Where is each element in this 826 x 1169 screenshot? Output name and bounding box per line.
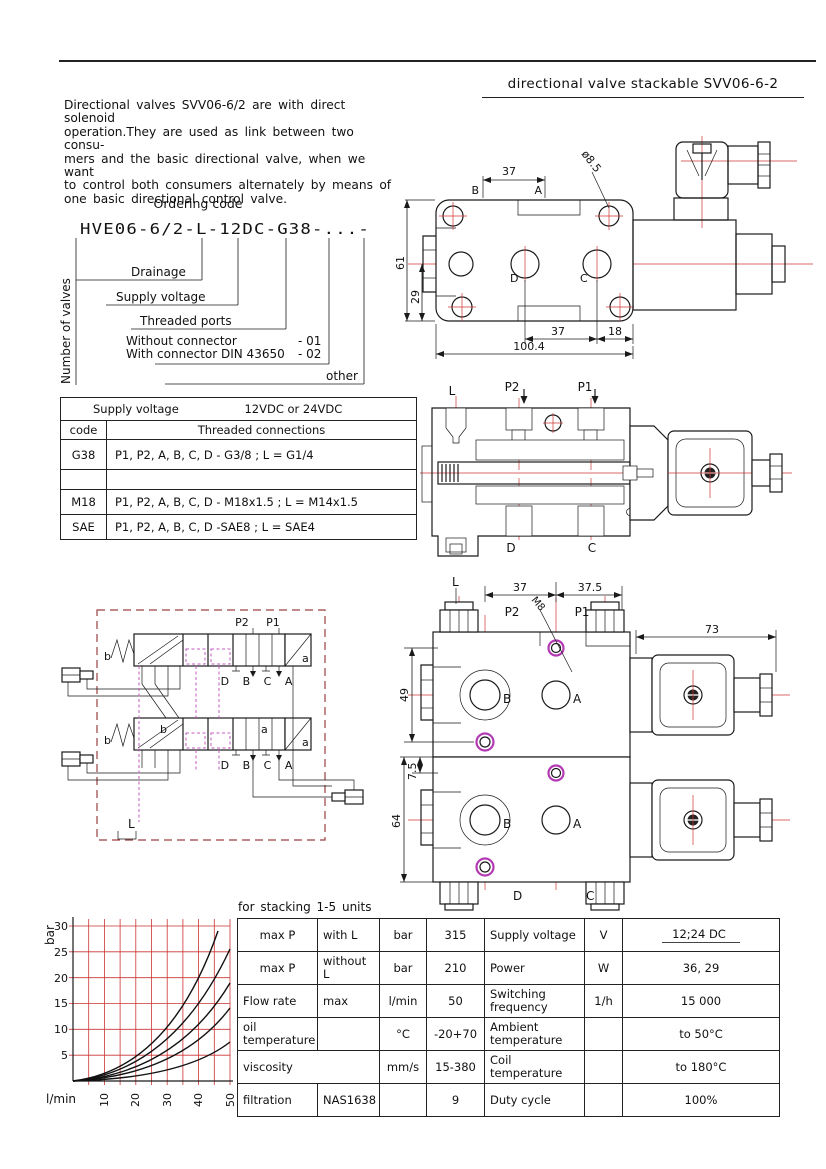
port-d-label: D — [506, 541, 515, 555]
spec-cell: 50 — [427, 985, 485, 1018]
supply-voltage-value: 12VDC or 24VDC — [244, 402, 342, 416]
port-p1-label: P1 — [575, 605, 590, 619]
chart-xlabel: l/min — [46, 1092, 76, 1106]
with-connector-code: - 02 — [298, 347, 321, 361]
xtick: 20 — [129, 1093, 142, 1107]
spec-cell: -20+70 — [427, 1018, 485, 1051]
spec-cell: 15-380 — [427, 1051, 485, 1084]
xtick: 30 — [161, 1093, 174, 1107]
code-cell: G38 — [61, 440, 107, 470]
spring-b-label-2: b — [104, 734, 111, 747]
spec-cell: max P — [238, 952, 318, 985]
spec-cell: Flow rate — [238, 985, 318, 1018]
spec-cell — [585, 1051, 623, 1084]
dim-37-top: 37 — [502, 165, 516, 178]
connections-cell: P1, P2, A, B, C, D - G3/8 ; L = G1/4 — [107, 440, 417, 470]
spec-cell — [585, 1018, 623, 1051]
dim-64: 64 — [390, 814, 403, 828]
spec-cell: Duty cycle — [485, 1084, 585, 1117]
spec-cell: 12;24 DC — [623, 919, 780, 952]
spec-cell: l/min — [380, 985, 427, 1018]
spec-cell: 210 — [427, 952, 485, 985]
spec-cell: without L — [318, 952, 380, 985]
xtick: 10 — [98, 1093, 111, 1107]
code-cell: M18 — [61, 490, 107, 515]
supply-voltage-label: Supply voltage — [93, 402, 179, 416]
port-p1-label: P1 — [578, 380, 593, 394]
intro-line: Directional valves SVV06-6/2 are with di… — [64, 99, 398, 126]
port-p2-label: P2 — [505, 605, 520, 619]
spec-cell: 36, 29 — [623, 952, 780, 985]
spec-cell: NAS1638 — [318, 1084, 380, 1117]
ytick: 15 — [54, 997, 68, 1010]
port-c-label: C — [588, 541, 596, 555]
port-b2-label: B — [503, 817, 511, 831]
valve-top-view-drawing: 37 B A ø8.5 61 29 D C 37 18 100.4 — [393, 128, 823, 378]
port-d-label: D — [513, 889, 522, 903]
stacking-note: for stacking 1-5 units — [238, 900, 371, 914]
port-p2-label: P2 — [505, 380, 520, 394]
code-header: code — [61, 421, 107, 440]
solenoid-2 — [630, 780, 772, 860]
schematic-p1: P1 — [266, 616, 280, 629]
consumer-plug-1 — [62, 668, 93, 682]
consumer-plug-2 — [62, 752, 93, 766]
ytick: 5 — [61, 1049, 68, 1062]
port-c-label: C — [586, 889, 594, 903]
solenoid-a-label-1: a — [302, 652, 309, 665]
ytick: 25 — [54, 946, 68, 959]
specs-table: max P with L bar 315 Supply voltage V 12… — [237, 918, 780, 1117]
position-b-label-2: b — [160, 723, 167, 736]
thread-m8-label: M8 — [529, 595, 547, 614]
position-a-label-2: a — [261, 723, 268, 736]
threaded-ports-label: Threaded ports — [139, 314, 232, 328]
datasheet-page: directional valve stackable SVV06-6-2 Di… — [0, 0, 826, 1169]
dim-18: 18 — [608, 325, 622, 338]
spec-cell: W — [585, 952, 623, 985]
with-connector-label: With connector DIN 43650 — [126, 347, 285, 361]
consumer-plug-3 — [332, 790, 363, 804]
voltage-header-cell: Supply voltage 12VDC or 24VDC — [61, 398, 417, 421]
code-cell: SAE — [61, 515, 107, 540]
port-b-label: B — [471, 184, 479, 197]
spec-cell: 315 — [427, 919, 485, 952]
intro-line: operation.They are used as link between … — [64, 126, 398, 153]
ports-dbca-2: D B C A — [221, 759, 298, 772]
ordering-code: HVE06-6/2-L-12DC-G38-...- — [80, 220, 370, 238]
ytick: 10 — [54, 1023, 68, 1036]
ytick: 20 — [54, 972, 68, 985]
schematic-p2: P2 — [235, 616, 249, 629]
spec-cell: Power — [485, 952, 585, 985]
ordering-code-diagram: Ordering code HVE06-6/2-L-12DC-G38-...- … — [58, 192, 398, 392]
port-l-label: L — [452, 575, 459, 589]
dim-37-bottom: 37 — [551, 325, 565, 338]
spec-cell — [380, 1084, 427, 1117]
intro-line: mers and the basic directional valve, wh… — [64, 153, 398, 180]
dim-29: 29 — [409, 290, 422, 304]
stacked-valves-drawing: L 37 37.5 P2 P1 M8 73 49 7.5 64 B A B A … — [390, 570, 822, 912]
spec-cell: 100% — [623, 1084, 780, 1117]
port-b1-label: B — [503, 692, 511, 706]
port-a1-label: A — [573, 692, 582, 706]
ordering-title: Ordering code — [154, 196, 243, 211]
spec-cell: bar — [380, 919, 427, 952]
connections-cell: P1, P2, A, B, C, D - M18x1.5 ; L = M14x1… — [107, 490, 417, 515]
valve-section-drawing: L P2 P1 D C — [420, 378, 820, 568]
spring-b-label-1: b — [104, 650, 111, 663]
dim-73: 73 — [705, 623, 719, 636]
spec-cell: Coil temperature — [485, 1051, 585, 1084]
spec-cell: V — [585, 919, 623, 952]
dim-61: 61 — [394, 256, 407, 270]
xtick: 50 — [224, 1093, 237, 1107]
spec-cell: 1/h — [585, 985, 623, 1018]
port-a2-label: A — [573, 817, 582, 831]
solenoid-a-label-2: a — [302, 736, 309, 749]
spec-cell: to 50°C — [623, 1018, 780, 1051]
hydraulic-schematic: P2 P1 b a D B C A b b a a D B C A — [60, 590, 390, 850]
spec-cell: mm/s — [380, 1051, 427, 1084]
ytick: 30 — [54, 920, 68, 933]
dim-49: 49 — [398, 688, 411, 702]
spec-cell: bar — [380, 952, 427, 985]
spec-cell: oil temperature — [238, 1018, 318, 1051]
number-of-valves-label: Number of valves — [59, 278, 73, 384]
spec-cell: Supply voltage — [485, 919, 585, 952]
valve-symbol-1 — [111, 628, 311, 676]
xtick: 40 — [192, 1093, 205, 1107]
spec-cell: 9 — [427, 1084, 485, 1117]
page-title: directional valve stackable SVV06-6-2 — [482, 76, 804, 98]
spec-cell — [585, 1084, 623, 1117]
spec-cell: viscosity — [238, 1051, 380, 1084]
spec-cell: max — [318, 985, 380, 1018]
spec-cell: filtration — [238, 1084, 318, 1117]
voltage-table: Supply voltage 12VDC or 24VDC code Threa… — [60, 397, 417, 540]
spec-cell: 15 000 — [623, 985, 780, 1018]
without-connector-label: Without connector — [126, 334, 237, 348]
spec-cell: max P — [238, 919, 318, 952]
spec-cell — [318, 1018, 380, 1051]
drainage-label: Drainage — [131, 265, 186, 279]
spec-cell: Ambient temperature — [485, 1018, 585, 1051]
valve-symbol-2 — [111, 718, 311, 760]
drain-l-label: L — [128, 817, 135, 831]
dim-37: 37 — [513, 581, 527, 594]
supply-voltage-label: Supply voltage — [116, 290, 206, 304]
dim-dia-8-5: ø8.5 — [579, 148, 604, 175]
intro-paragraph: Directional valves SVV06-6/2 are with di… — [64, 99, 398, 206]
ports-dbca-1: D B C A — [221, 675, 298, 688]
port-a-label: A — [534, 184, 542, 197]
without-connector-code: - 01 — [298, 334, 321, 348]
port-l-label: L — [449, 384, 456, 398]
dim-37-5: 37.5 — [578, 581, 603, 594]
solenoid-1 — [630, 655, 772, 735]
code-cell — [61, 470, 107, 490]
connections-cell: P1, P2, A, B, C, D -SAE8 ; L = SAE4 — [107, 515, 417, 540]
spec-cell: °C — [380, 1018, 427, 1051]
dim-100-4: 100.4 — [513, 340, 545, 353]
intro-line: to control both consumers alternately by… — [64, 179, 398, 192]
spec-cell: to 180°C — [623, 1051, 780, 1084]
port-c-label: C — [580, 272, 588, 285]
connections-cell — [107, 470, 417, 490]
dim-7-5: 7.5 — [406, 763, 419, 781]
spec-cell: Switching frequency — [485, 985, 585, 1018]
connections-header: Threaded connections — [107, 421, 417, 440]
top-rule — [59, 60, 816, 62]
pressure-flow-chart: bar 30 25 20 15 10 5 10 20 30 40 50 l/mi… — [40, 893, 240, 1127]
spec-cell: with L — [318, 919, 380, 952]
port-d-label: D — [510, 272, 518, 285]
other-label: other — [326, 369, 358, 383]
